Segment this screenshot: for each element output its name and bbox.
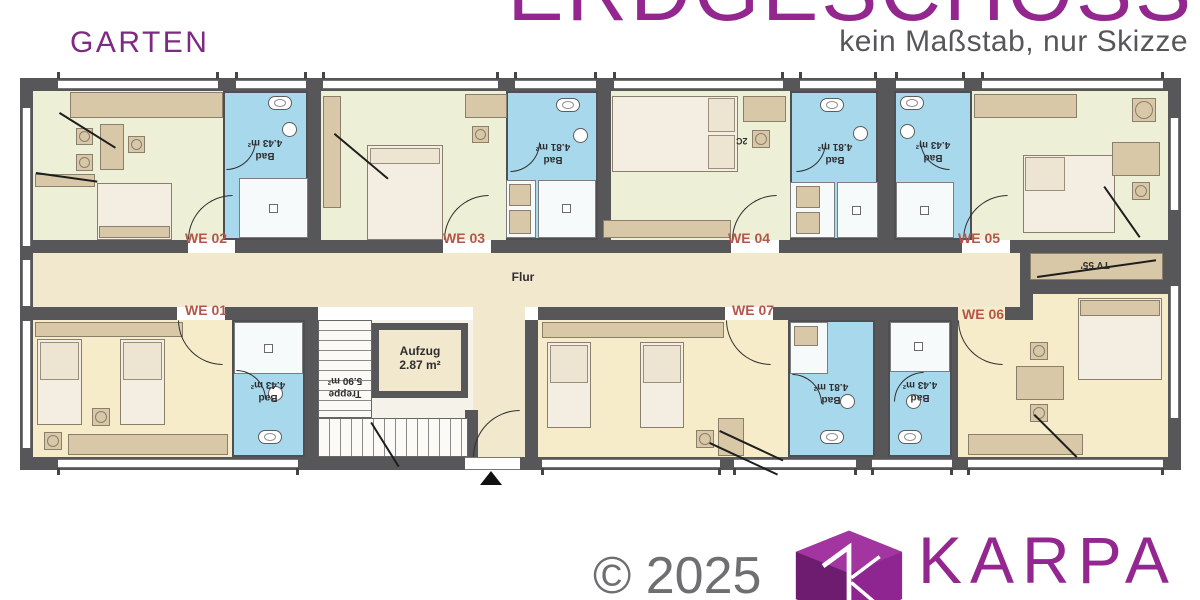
label-we01: WE 01 xyxy=(185,302,227,318)
chair xyxy=(752,130,770,148)
window xyxy=(982,80,1163,89)
wall xyxy=(491,240,731,253)
bed-foot xyxy=(99,226,170,238)
kitchen-counter xyxy=(70,92,223,118)
toilet xyxy=(900,96,924,110)
window xyxy=(515,80,596,89)
window xyxy=(800,80,876,89)
chair xyxy=(128,136,145,153)
elevator-label: Aufzug 2.87 m² xyxy=(375,344,465,372)
corridor-label: Flur xyxy=(498,270,548,284)
wall xyxy=(1033,240,1168,253)
bed-pillow xyxy=(708,98,735,132)
wall xyxy=(1020,280,1168,294)
washer xyxy=(796,186,820,208)
chair xyxy=(1132,182,1150,200)
chair xyxy=(696,430,714,448)
toilet xyxy=(258,430,282,444)
label-we02: WE 02 xyxy=(185,230,227,246)
chair xyxy=(76,154,93,171)
table xyxy=(1112,142,1160,176)
stairs-upper-flight xyxy=(318,320,372,418)
shower-drain xyxy=(914,342,923,351)
wall xyxy=(538,307,725,320)
bath-label-we02: Bad 4.43 m² xyxy=(233,136,297,161)
chair xyxy=(92,408,110,426)
bath-area: 4.43 m² xyxy=(903,380,937,391)
washer xyxy=(509,184,531,206)
wall xyxy=(878,91,894,240)
shower-drain xyxy=(264,344,273,353)
armchair xyxy=(1132,98,1156,122)
wall xyxy=(235,240,443,253)
toilet xyxy=(820,98,844,112)
stairs-label: Treppe 5.90 m² xyxy=(316,374,374,399)
wall xyxy=(33,307,177,320)
floor-plan-page: GARTEN ERDGESCHOSS kein Maßstab, nur Ski… xyxy=(0,0,1200,600)
bath-area: 4.43 m² xyxy=(248,138,282,149)
page-subtitle: kein Maßstab, nur Skizze xyxy=(839,25,1188,59)
label-we03: WE 03 xyxy=(443,230,485,246)
brand-name: KARPA xyxy=(918,522,1177,598)
window xyxy=(614,80,783,89)
window xyxy=(58,80,218,89)
label-we07: WE 07 xyxy=(732,302,774,318)
chair xyxy=(472,126,489,143)
bath-name: Bad xyxy=(259,392,278,403)
closet-row xyxy=(542,322,724,338)
window xyxy=(22,260,31,306)
window xyxy=(872,459,952,468)
wall xyxy=(779,240,962,253)
washer xyxy=(794,326,818,346)
bath-label-we04: Bad 4.81 m² xyxy=(803,140,867,165)
washbasin xyxy=(282,122,297,137)
wall xyxy=(952,320,958,457)
bath-label-we06: Bad 4.43 m² xyxy=(888,378,952,403)
wall xyxy=(225,307,318,320)
bed-head xyxy=(1080,300,1160,316)
washbasin xyxy=(900,124,915,139)
bed-duvet xyxy=(643,345,681,383)
toilet xyxy=(820,430,844,444)
karpa-logo-icon xyxy=(790,528,908,600)
window xyxy=(323,80,498,89)
bath-name: Bad xyxy=(822,394,841,405)
toilet xyxy=(268,96,292,110)
label-we05: WE 05 xyxy=(958,230,1000,246)
window xyxy=(968,459,1163,468)
bath-label-we03: Bad 4.81 m² xyxy=(521,140,585,165)
wall xyxy=(525,320,538,457)
shower-drain xyxy=(920,206,929,215)
bath-label-we01: Bad 4.43 m² xyxy=(236,378,300,403)
elevator-area: 2.87 m² xyxy=(399,358,440,372)
kitchen-counter xyxy=(68,434,228,455)
bench xyxy=(603,220,731,238)
bath-area: 4.81 m² xyxy=(814,382,848,393)
bath-name: Bad xyxy=(911,392,930,403)
entrance-door-gap xyxy=(465,457,520,470)
bath-label-we07: Bad 4.81 m² xyxy=(799,380,863,405)
wall xyxy=(598,91,611,240)
bed-pillows xyxy=(370,148,440,164)
window xyxy=(22,321,31,448)
window xyxy=(896,80,964,89)
floor-plan: Treppe 5.90 m² Aufzug 2.87 m² xyxy=(20,78,1181,470)
wall xyxy=(875,320,888,457)
window xyxy=(58,459,298,468)
shower-drain xyxy=(852,206,861,215)
bath-area: 4.43 m² xyxy=(916,140,950,151)
bath-area: 4.81 m² xyxy=(536,142,570,153)
copyright: © 2025 xyxy=(593,546,761,600)
window xyxy=(1170,286,1179,418)
toilet xyxy=(556,98,580,112)
shower-drain xyxy=(562,204,571,213)
bed-pillow xyxy=(1025,157,1065,191)
bath-name: Bad xyxy=(826,154,845,165)
bed-pillow xyxy=(708,135,735,169)
wall xyxy=(308,91,321,240)
wall xyxy=(773,307,958,320)
label-we04: WE 04 xyxy=(728,230,770,246)
bath-area: 4.81 m² xyxy=(818,142,852,153)
chair xyxy=(1030,342,1048,360)
washer xyxy=(509,210,531,234)
entrance-marker xyxy=(480,471,502,485)
window xyxy=(542,459,720,468)
chair xyxy=(44,432,62,450)
tv-label: TV 55' xyxy=(1060,259,1130,270)
bed-duvet xyxy=(550,345,588,383)
bath-name: Bad xyxy=(544,154,563,165)
bed-duvet xyxy=(123,342,162,380)
elevator-name: Aufzug xyxy=(400,344,441,358)
chair-note: 2C xyxy=(736,136,748,146)
bath-name: Bad xyxy=(924,152,943,163)
bath-label-we05: Bad 4.43 m² xyxy=(901,138,965,163)
kitchen-counter xyxy=(974,94,1077,118)
window xyxy=(22,108,31,246)
wall xyxy=(33,240,188,253)
washbasin xyxy=(853,126,868,141)
window xyxy=(1170,118,1179,210)
stairs-name: Treppe xyxy=(329,388,362,399)
wardrobe xyxy=(323,96,341,208)
garden-label: GARTEN xyxy=(70,26,209,60)
washer xyxy=(796,212,820,234)
bath-area: 4.43 m² xyxy=(251,380,285,391)
stairs-area: 5.90 m² xyxy=(328,376,362,387)
label-we06: WE 06 xyxy=(962,306,1004,322)
closet-row xyxy=(35,322,183,337)
toilet xyxy=(898,430,922,444)
sideboard xyxy=(743,96,786,122)
stairs-lower-flight xyxy=(318,418,468,457)
shower-drain xyxy=(269,204,278,213)
sideboard xyxy=(465,94,507,118)
bath-name: Bad xyxy=(256,150,275,161)
window xyxy=(236,80,306,89)
bed-duvet xyxy=(40,342,79,380)
table xyxy=(1016,366,1064,400)
